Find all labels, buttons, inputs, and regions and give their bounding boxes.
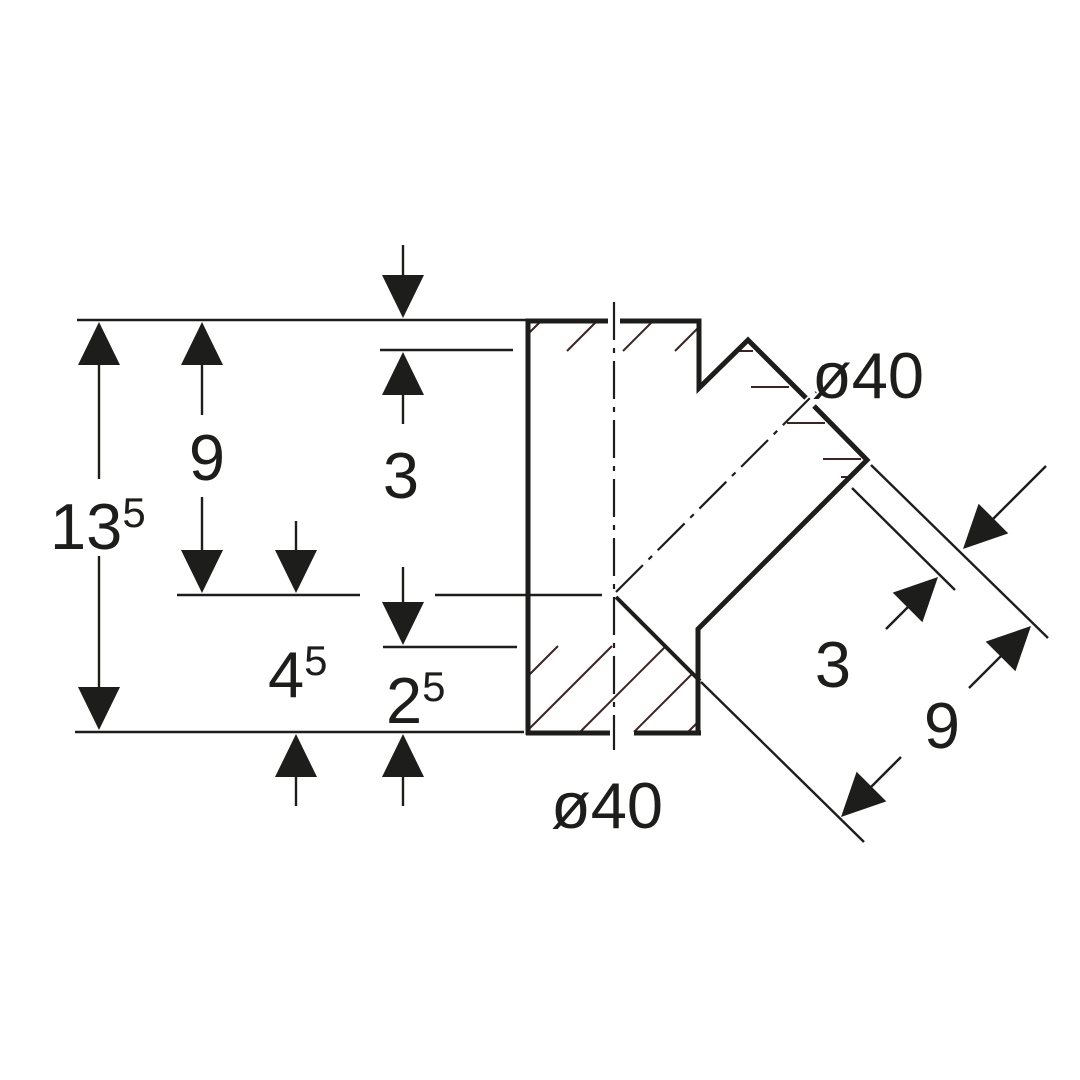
dim-label-3-branch: 3: [815, 628, 851, 701]
label-diameter-40-bottom: ø40: [551, 769, 663, 842]
label-text: ø40: [812, 339, 924, 412]
dim-label-9-branch: 9: [924, 689, 960, 762]
label-text: 3: [383, 439, 419, 512]
label-text: 9: [924, 689, 960, 762]
label-superscript: 5: [122, 489, 145, 536]
technical-drawing-page: 135934525ø40ø4039: [0, 0, 1080, 1080]
label-text: 2: [386, 664, 422, 737]
label-diameter-40-branch: ø40: [812, 339, 924, 412]
dim-label-3-top: 3: [383, 439, 419, 512]
label-text: ø40: [551, 769, 663, 842]
pipe-fitting-dimension-drawing: 135934525ø40ø4039: [0, 0, 1080, 1080]
label-text: 3: [815, 628, 851, 701]
label-text: 13: [50, 490, 122, 563]
label-superscript: 5: [304, 637, 327, 684]
label-text: 9: [189, 421, 225, 494]
drawing-background: [0, 0, 1080, 1080]
dim-label-9-left: 9: [189, 421, 225, 494]
label-superscript: 5: [422, 663, 445, 710]
label-text: 4: [268, 638, 304, 711]
